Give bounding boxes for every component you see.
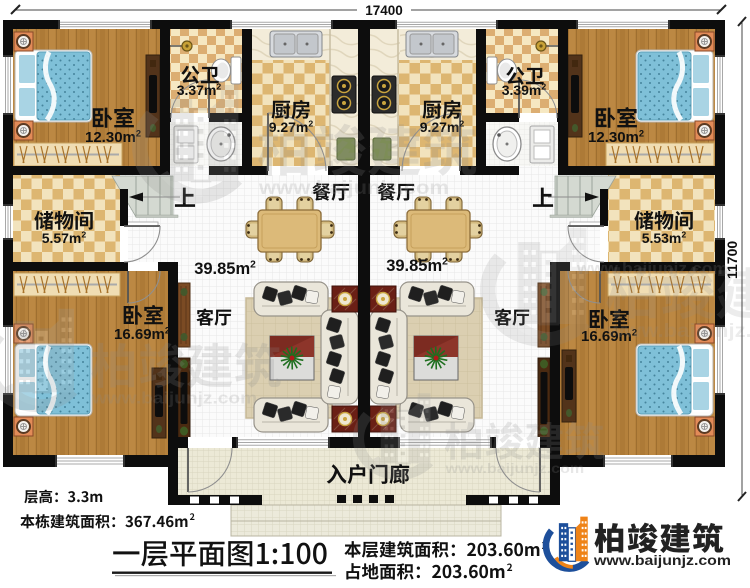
svg-text:39.85m2: 39.85m2	[194, 260, 256, 278]
svg-text:17400: 17400	[365, 3, 403, 18]
svg-text:12.30m2: 12.30m2	[588, 128, 644, 146]
svg-text:16.69m2: 16.69m2	[114, 325, 170, 343]
svg-text:5.53m2: 5.53m2	[642, 230, 687, 246]
svg-text:3.37m2: 3.37m2	[177, 82, 222, 98]
svg-text:www.baijunjz.com: www.baijunjz.com	[593, 553, 731, 568]
svg-text:3.39m2: 3.39m2	[502, 82, 547, 98]
svg-text:39.85m2: 39.85m2	[386, 257, 448, 275]
svg-text:5.57m2: 5.57m2	[42, 230, 87, 246]
svg-text:11700: 11700	[724, 241, 740, 279]
svg-text:www.baijunjz.com: www.baijunjz.com	[576, 259, 728, 278]
